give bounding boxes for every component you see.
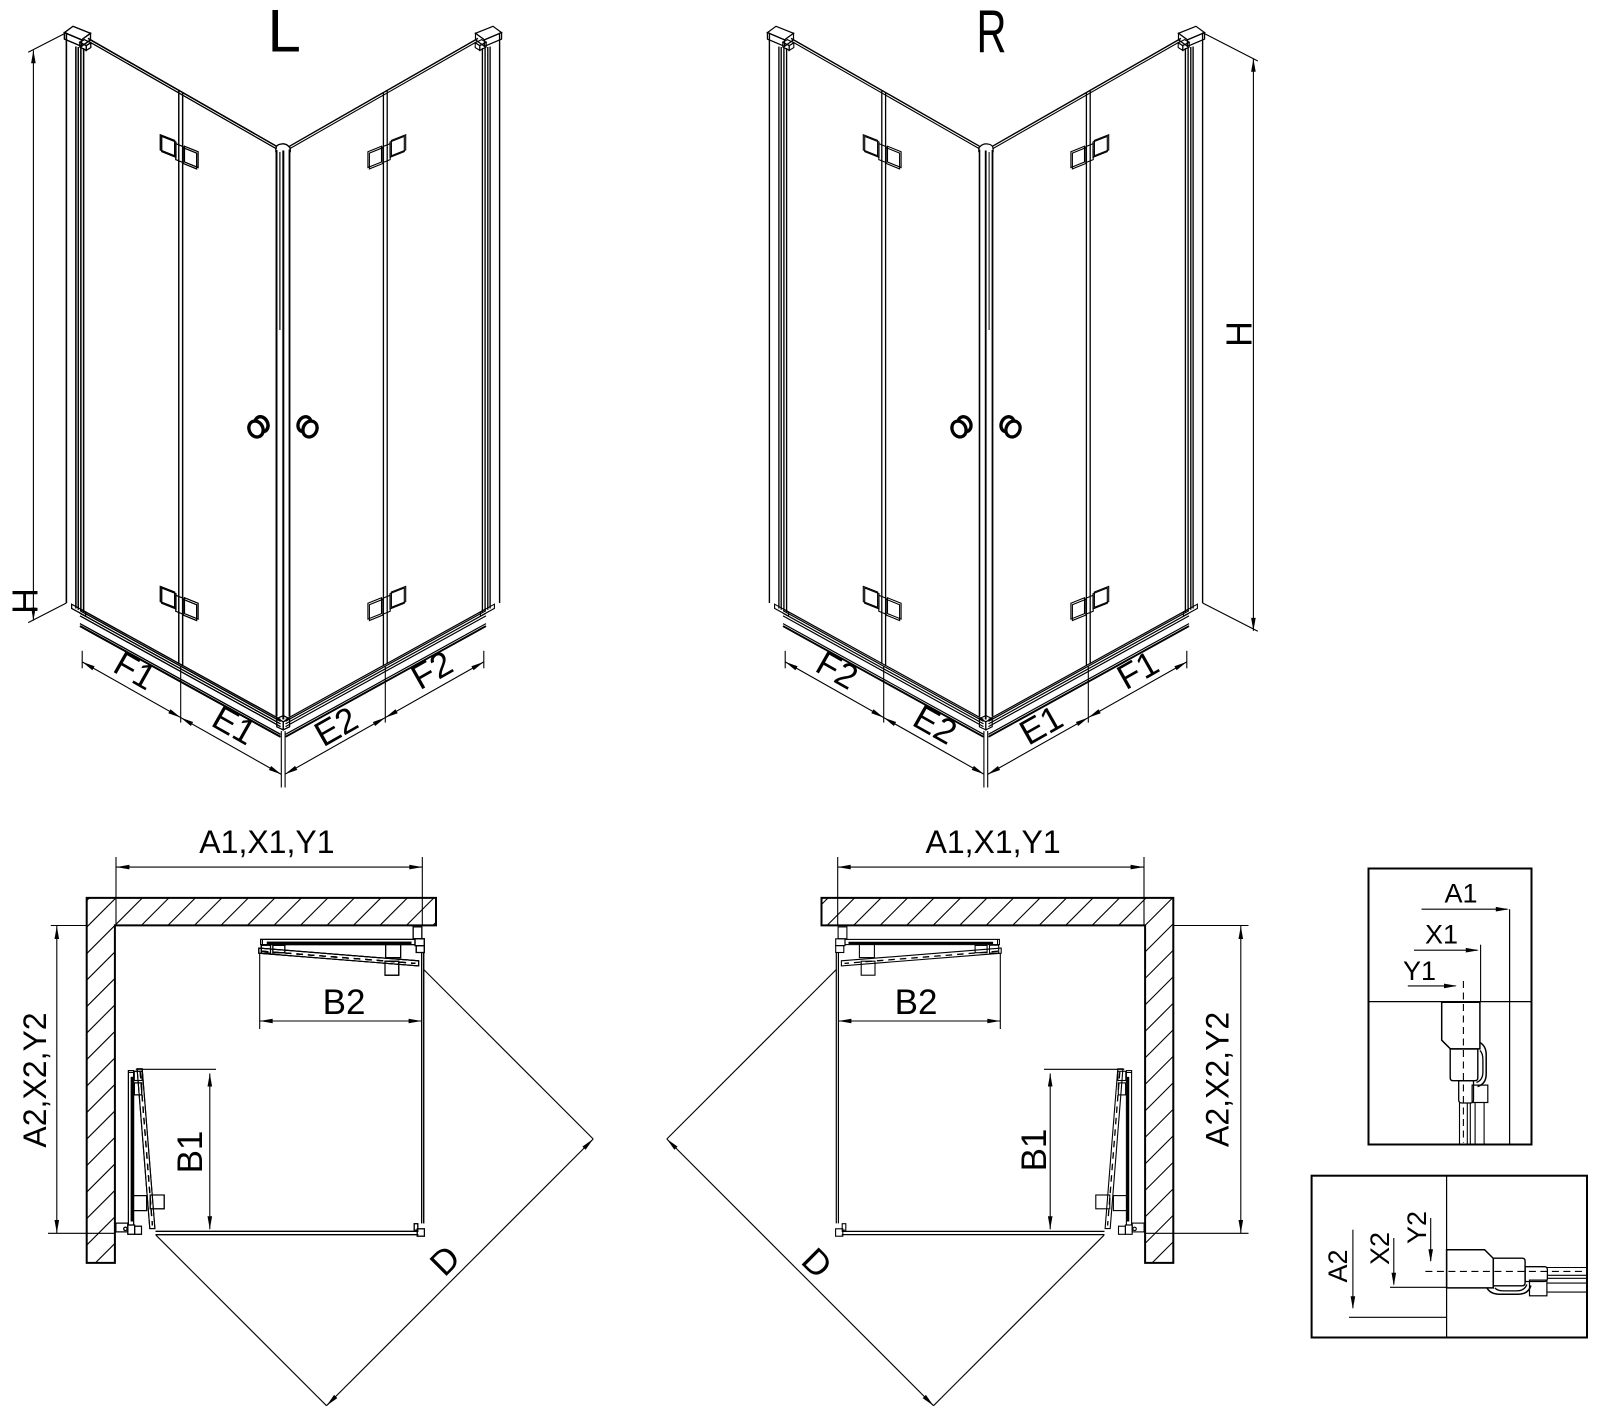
svg-text:B1: B1: [171, 1131, 210, 1174]
svg-text:A1,X1,Y1: A1,X1,Y1: [925, 824, 1060, 860]
svg-text:H: H: [5, 588, 46, 614]
svg-text:A2,X2,Y2: A2,X2,Y2: [17, 1012, 53, 1147]
svg-text:R: R: [977, 0, 1007, 66]
svg-text:B1: B1: [1015, 1129, 1054, 1172]
svg-text:A1,X1,Y1: A1,X1,Y1: [199, 824, 334, 860]
svg-text:A2: A2: [1323, 1249, 1353, 1282]
svg-text:X2: X2: [1365, 1232, 1395, 1265]
svg-text:B2: B2: [323, 983, 366, 1022]
svg-text:L: L: [268, 0, 301, 65]
svg-text:X1: X1: [1425, 920, 1458, 950]
svg-text:A1: A1: [1444, 879, 1477, 909]
svg-text:B2: B2: [895, 983, 938, 1022]
svg-text:H: H: [1219, 321, 1260, 347]
svg-text:Y2: Y2: [1402, 1211, 1432, 1244]
svg-text:A2,X2,Y2: A2,X2,Y2: [1200, 1012, 1236, 1147]
svg-text:Y1: Y1: [1403, 956, 1436, 986]
